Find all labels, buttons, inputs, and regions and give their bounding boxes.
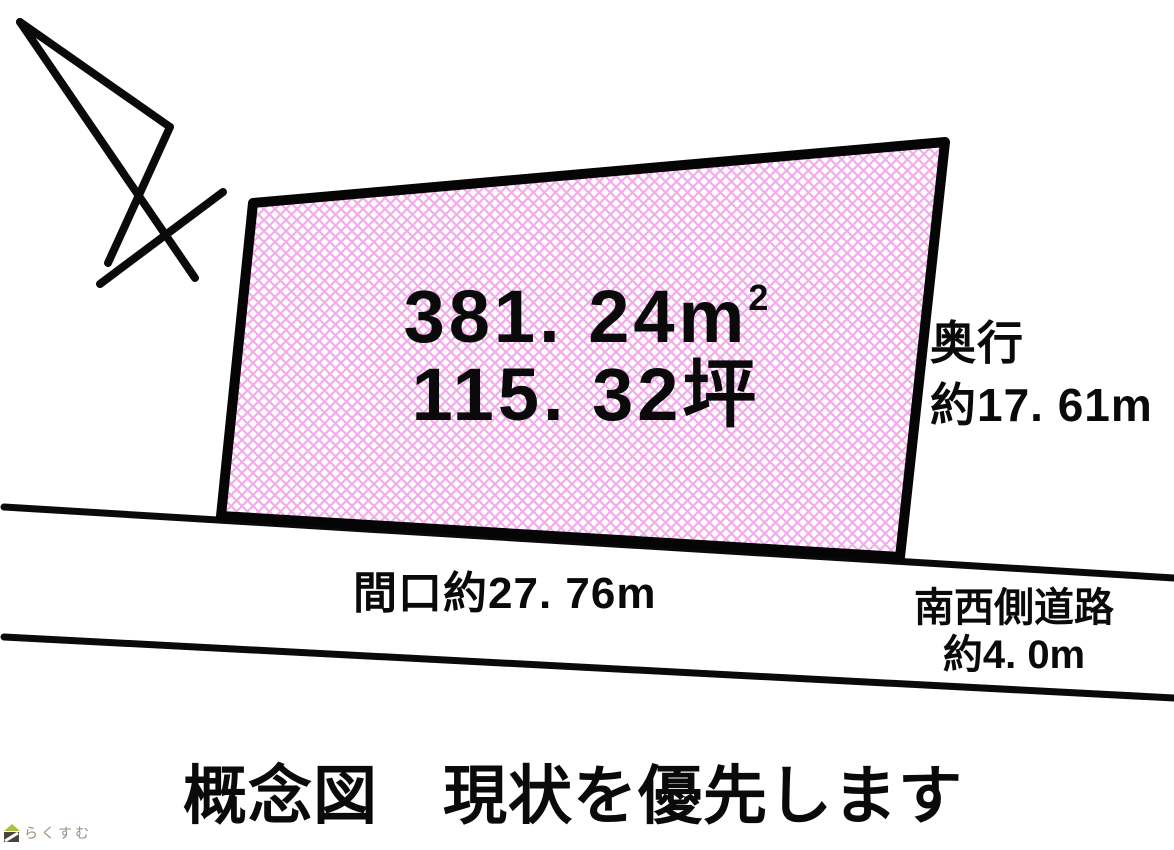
- road-name: 南西側道路: [888, 585, 1140, 632]
- road-label: 南西側道路 約4. 0m: [888, 585, 1140, 679]
- depth-label: 奥行 約17. 61m: [930, 312, 1153, 436]
- road-width: 約4. 0m: [888, 632, 1140, 679]
- watermark-text: らくすむ: [24, 822, 92, 844]
- depth-value: 約17. 61m: [930, 374, 1153, 436]
- frontage-label: 間口約27. 76m: [353, 557, 656, 621]
- north-arrow-sketch: [20, 22, 223, 284]
- diagram-caption: 概念図 現状を優先します: [78, 745, 1068, 837]
- parcel-area-label: 381. 24m2 115. 32坪: [368, 278, 804, 434]
- depth-title: 奥行: [930, 312, 1153, 374]
- land-plot-diagram-page: { "diagram": { "plot": { "area_value": "…: [0, 0, 1174, 850]
- area-square-meters: 381. 24m2: [368, 278, 804, 356]
- watermark: らくすむ: [4, 822, 92, 844]
- area-tsubo: 115. 32坪: [368, 356, 804, 434]
- squared-exponent: 2: [748, 277, 768, 318]
- house-icon: [4, 824, 20, 842]
